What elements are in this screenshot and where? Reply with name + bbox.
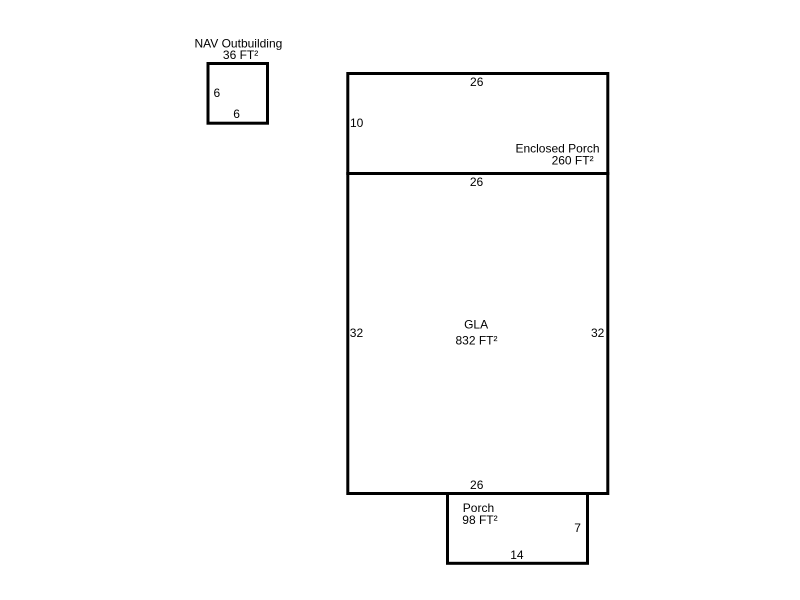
svg-text:36 FT²: 36 FT² xyxy=(223,48,258,62)
svg-text:6: 6 xyxy=(233,107,240,121)
svg-text:26: 26 xyxy=(470,75,484,89)
svg-text:10: 10 xyxy=(350,116,364,130)
svg-text:32: 32 xyxy=(591,326,605,340)
svg-text:26: 26 xyxy=(470,478,484,492)
svg-text:14: 14 xyxy=(510,548,524,562)
svg-text:6: 6 xyxy=(214,86,221,100)
svg-text:26: 26 xyxy=(470,175,484,189)
svg-text:832 FT²: 832 FT² xyxy=(455,334,497,348)
svg-text:98 FT²: 98 FT² xyxy=(462,513,497,527)
svg-text:32: 32 xyxy=(350,326,364,340)
svg-text:260 FT²: 260 FT² xyxy=(552,153,594,167)
svg-text:GLA: GLA xyxy=(464,318,488,332)
svg-text:7: 7 xyxy=(574,521,581,535)
